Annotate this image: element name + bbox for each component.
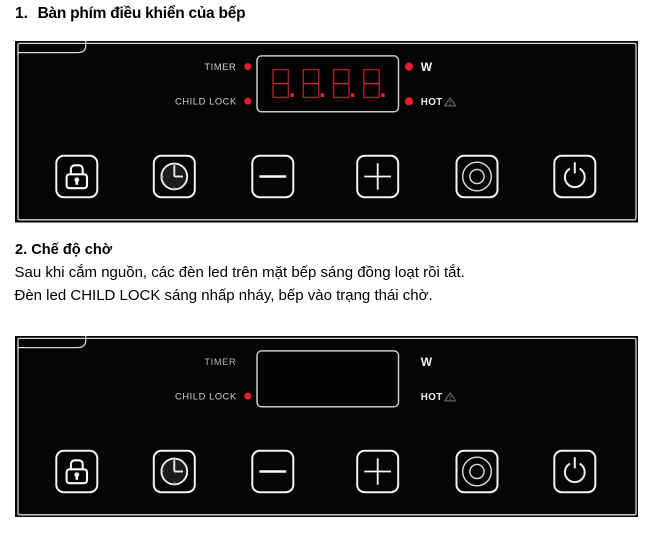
svg-text:CHILD LOCK: CHILD LOCK	[175, 96, 237, 106]
svg-text:TIMER: TIMER	[204, 62, 236, 72]
svg-text:W: W	[420, 60, 432, 74]
svg-text:W: W	[420, 355, 432, 369]
svg-text:CHILD LOCK: CHILD LOCK	[175, 391, 237, 401]
svg-text:HOT: HOT	[420, 391, 442, 402]
svg-text:TIMER: TIMER	[204, 356, 236, 366]
svg-text:HOT: HOT	[420, 97, 442, 108]
